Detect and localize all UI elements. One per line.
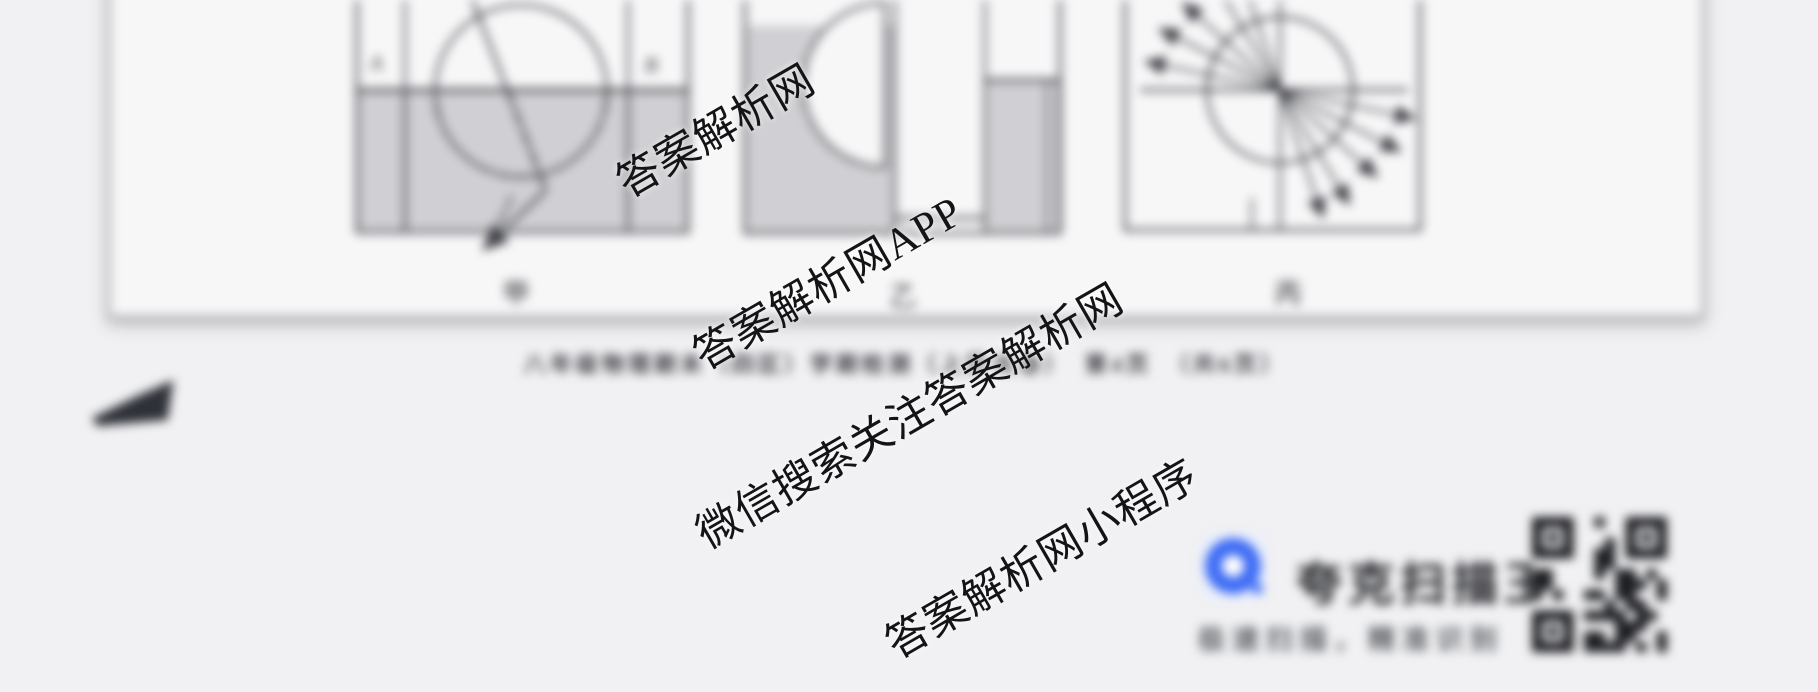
- brand-logo: [1199, 532, 1267, 600]
- brand-slogan: 极速扫描，精准识别: [1198, 618, 1504, 657]
- figure-jia-label: 甲: [503, 279, 530, 309]
- figure-bing-label: 丙: [1275, 279, 1302, 309]
- brand-logo-ring: [1205, 538, 1261, 594]
- physics-figures: A B 甲 乙: [0, 0, 1818, 340]
- page-footer-caption: 八年级物理期末（四区）学期检测（上册试卷） 第4页 （共6页）: [430, 347, 1380, 379]
- screenshot-root: A B 甲 乙: [0, 0, 1818, 692]
- brand-logo-dot: [1252, 583, 1263, 594]
- ink-mark: [92, 378, 176, 428]
- brand-name: 夸克扫描王: [1296, 548, 1556, 614]
- figure-bing: [1125, 0, 1420, 230]
- figure-jia: A B: [357, 0, 688, 247]
- figure-jia-point-b: B: [645, 53, 658, 77]
- scanned-document: A B 甲 乙: [0, 0, 1818, 692]
- qr-code-icon: [1532, 514, 1667, 654]
- figure-jia-point-a: A: [368, 51, 383, 75]
- brand-logo-hole: [1222, 555, 1244, 577]
- figure-yi-label: 乙: [890, 282, 917, 312]
